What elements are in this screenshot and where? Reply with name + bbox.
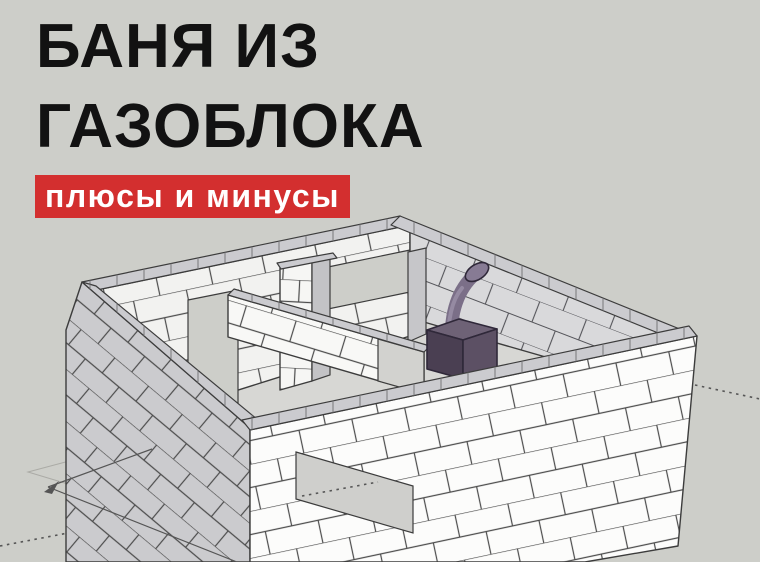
dimension-arrowhead xyxy=(44,481,59,494)
guide-dotted-right xyxy=(695,385,760,399)
stove-side-partition xyxy=(408,248,426,342)
bathhouse-illustration xyxy=(0,0,760,562)
thumbnail-page: { "header": { "title_line1": "БАНЯ ИЗ", … xyxy=(0,0,760,562)
